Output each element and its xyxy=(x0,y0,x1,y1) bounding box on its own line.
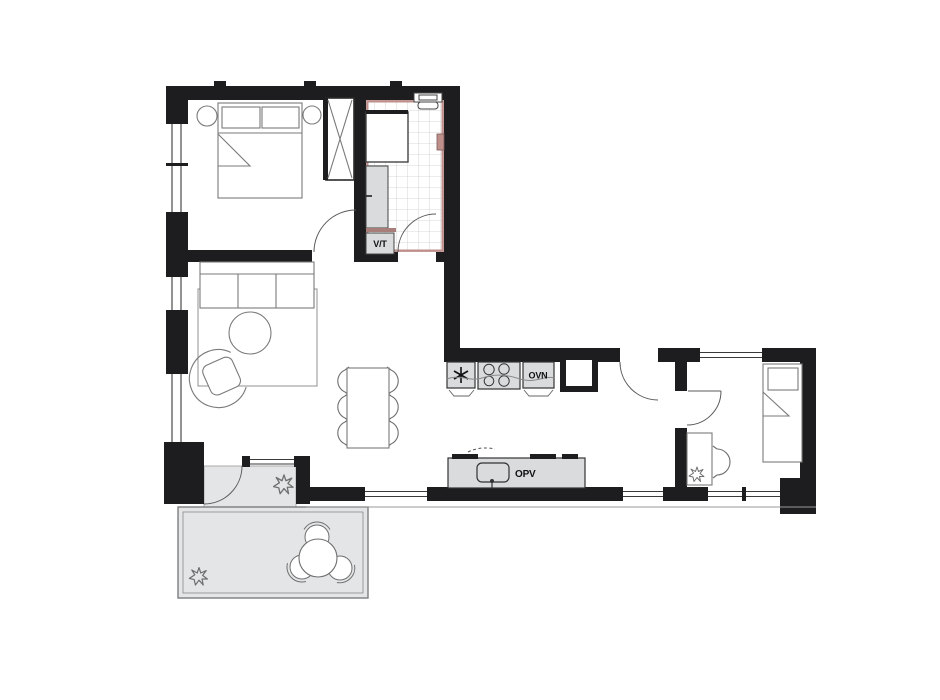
recessed-balcony-floor xyxy=(204,466,296,512)
window-west-3 xyxy=(166,374,188,442)
wall-bedroom1-south xyxy=(186,250,312,262)
vanity-cabinet xyxy=(366,166,388,228)
shower-screen xyxy=(366,110,408,114)
radiator xyxy=(437,134,444,150)
dishwasher-label: OPV xyxy=(515,469,536,480)
dining-table xyxy=(347,368,389,448)
wall-west-pier-2 xyxy=(166,212,188,277)
wall-tick xyxy=(390,81,402,86)
wall-south-seg2 xyxy=(427,487,623,501)
wall-tick xyxy=(214,81,226,86)
pillow xyxy=(222,107,260,128)
oven-label: OVN xyxy=(529,371,548,381)
bedroom-2 xyxy=(687,364,802,485)
recessed-balcony xyxy=(204,466,296,512)
floor-plan-page: V/T xyxy=(0,0,940,700)
bedside-table xyxy=(303,106,321,124)
window-bedroom2-north xyxy=(700,348,762,362)
balcony xyxy=(178,507,368,598)
wall-south-corner-mass xyxy=(780,478,816,514)
bedside-table xyxy=(197,106,217,126)
balcony-floor xyxy=(178,507,368,598)
shower-icon xyxy=(366,112,408,162)
window-west-2 xyxy=(166,277,188,310)
shaft-void xyxy=(566,360,592,386)
entrance-opening xyxy=(620,348,658,362)
window-south-2 xyxy=(623,487,663,501)
wall-tick xyxy=(304,81,316,86)
cabinet-door-mark xyxy=(524,390,553,396)
door-swing-bedroom1 xyxy=(314,210,356,252)
wall-recessed-balcony-east xyxy=(296,456,310,504)
kitchen-island: OPV xyxy=(448,448,585,488)
wall-east-left-wing xyxy=(444,86,460,362)
window-balcony-glazing xyxy=(250,460,294,465)
cabinet-door-mark xyxy=(449,390,474,396)
pillow xyxy=(768,368,798,390)
door-swing-bedroom2 xyxy=(687,391,721,425)
pillow xyxy=(262,107,299,128)
desk-chair xyxy=(713,446,730,478)
wardrobe xyxy=(323,98,354,180)
wall-west-pier-3 xyxy=(166,310,188,374)
washer-dryer-label: V/T xyxy=(373,239,387,249)
window-south-1 xyxy=(365,487,427,501)
living-room xyxy=(180,262,398,448)
floor-plan: V/T xyxy=(0,0,940,700)
balcony-table xyxy=(299,539,337,577)
wall-west-pier-1 xyxy=(166,86,188,124)
wall-south-seg1 xyxy=(305,487,365,501)
wall-south-seg3 xyxy=(663,487,708,501)
window-south-3 xyxy=(708,487,780,501)
wall-west-corner-mass xyxy=(164,442,204,504)
wall-bedroom2-west-lower xyxy=(675,428,687,488)
dishwasher-swing-dashes xyxy=(468,448,495,452)
wall-bathroom-west xyxy=(354,96,366,262)
window-west-1 xyxy=(166,124,188,212)
toilet-icon xyxy=(414,93,442,109)
bedroom-1 xyxy=(197,98,354,198)
door-swing-entrance xyxy=(620,362,658,400)
wall-bathroom-south-right xyxy=(436,252,460,262)
coffee-table xyxy=(229,312,271,354)
wall-bedroom2-west-upper xyxy=(675,362,687,391)
sofa xyxy=(200,262,314,308)
wall-glass-pier xyxy=(242,456,250,467)
vanity-counter-edge xyxy=(366,228,396,232)
